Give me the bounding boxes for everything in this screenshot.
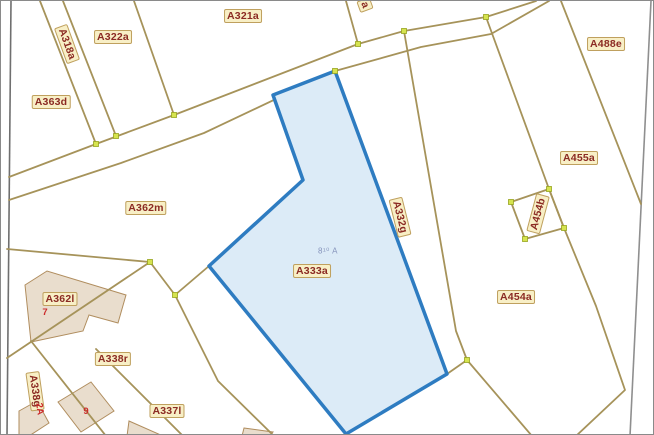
parcel-label-a333a: A333a xyxy=(293,264,331,278)
parcel-label-a321a: A321a xyxy=(224,9,262,23)
boundary-a322a-east xyxy=(134,1,174,115)
boundary-a318a-west xyxy=(40,1,96,144)
parcel-map-drawing xyxy=(1,1,654,435)
house-number-2a: 2A xyxy=(33,402,45,415)
road-upper-edge xyxy=(9,1,536,177)
boundary-a318a-east xyxy=(63,1,116,136)
neatline-right xyxy=(630,1,651,435)
boundary-zigzag-a333a-west xyxy=(150,262,209,295)
parcel-label-a362m: A362m xyxy=(125,201,166,215)
cadastral-map-canvas[interactable]: A318a A322a A321a A363d A488e A455a A362… xyxy=(0,0,654,435)
house-number-7: 7 xyxy=(42,308,47,318)
boundary-a321a-east xyxy=(346,1,358,44)
selected-parcel-annotation: 8¹⁰ A xyxy=(318,247,338,256)
house-number-9: 9 xyxy=(83,407,88,417)
parcel-label-a488e: A488e xyxy=(587,37,625,51)
parcel-label-a454a: A454a xyxy=(497,290,535,304)
boundary-a488e-west xyxy=(561,1,641,204)
building-a362l xyxy=(25,271,126,342)
parcel-label-a363d: A363d xyxy=(32,95,71,109)
parcel-label-a322a: A322a xyxy=(94,30,132,44)
boundary-a362m-south xyxy=(7,249,150,262)
parcel-label-a455a: A455a xyxy=(560,151,598,165)
neatline-left xyxy=(7,1,11,435)
parcel-label-a337l: A337l xyxy=(149,404,184,418)
boundary-a332g-link xyxy=(447,360,467,374)
boundary-a337l-a454a xyxy=(467,360,532,435)
building-bottom-triangle xyxy=(127,421,163,435)
boundary-a454-west-long xyxy=(486,17,625,435)
parcel-label-a338r: A338r xyxy=(95,352,131,366)
parcel-label-a362l: A362l xyxy=(42,292,77,306)
